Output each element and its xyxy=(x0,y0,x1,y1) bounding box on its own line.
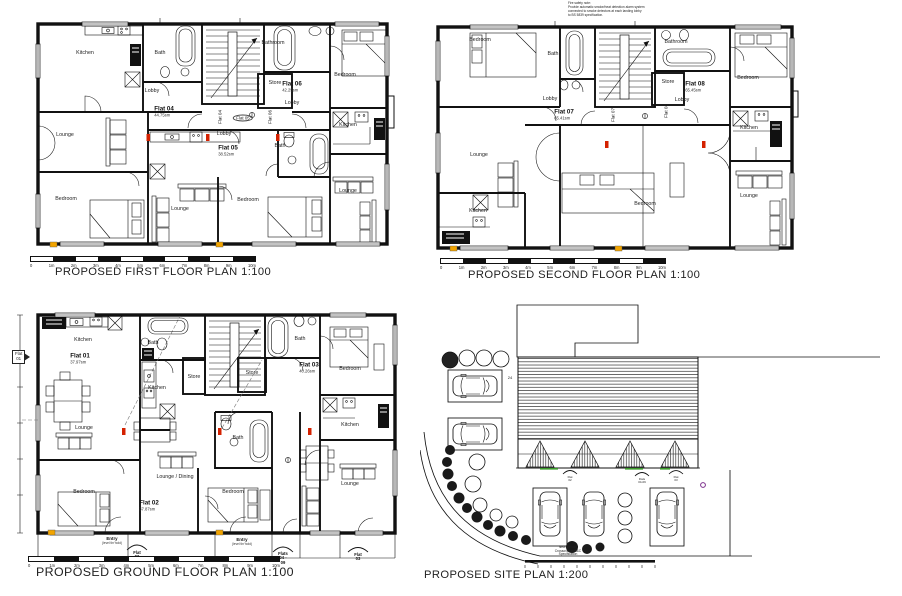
room-label: Store xyxy=(246,371,259,377)
room-label: Kitchen xyxy=(148,386,166,392)
room-label: Lounge xyxy=(470,153,488,159)
flat-area: 40.26sm xyxy=(299,369,319,373)
flat-area: 65.41sm xyxy=(554,116,574,120)
room-label: Bath xyxy=(548,52,559,58)
room-label: Bedroom xyxy=(737,76,759,82)
door-tag-flat08: Flat 08 xyxy=(664,104,669,118)
flat-label-04: Flat 0444.75sm xyxy=(154,107,174,118)
room-label: Kitchen xyxy=(74,338,92,344)
room-label: Bath xyxy=(233,436,244,442)
room-label: Lobby xyxy=(675,98,689,104)
room-label: Lobby xyxy=(543,97,557,103)
ground-floor-drawing xyxy=(10,300,410,596)
site-canopy-flats04-09: Flats 04-09 xyxy=(638,478,645,484)
room-label: Bath xyxy=(295,337,306,343)
room-label: Bath xyxy=(155,51,166,57)
flat01-entry-tag: Flat 01 xyxy=(12,350,25,364)
door-tag-flat07: Flat 07 xyxy=(611,108,616,122)
room-label: Bedroom xyxy=(222,490,244,496)
room-label: Lounge xyxy=(171,207,189,213)
site-plan-title: PROPOSED SITE PLAN 1:200 xyxy=(424,569,588,581)
entry-sub: (level thr'hold) xyxy=(232,543,252,546)
ground-floor-plan: Kitchen Bath Kitchen Store Store Bath Be… xyxy=(10,300,410,596)
entry-label: Entry(level thr'hold) xyxy=(232,538,252,546)
room-label: Lobby xyxy=(285,101,299,107)
flat-label-06: Flat 0642.25sm xyxy=(282,82,302,93)
site-canopy-flat03: Flat 03 xyxy=(674,476,679,482)
site-plan: Flat 02 Flats 04-09 Flat 03 24 New Vehic… xyxy=(420,300,900,596)
room-label: Lounge xyxy=(740,194,758,200)
room-label: Kitchen xyxy=(339,123,357,129)
room-label: Lobby xyxy=(145,89,159,95)
site-plan-drawing xyxy=(420,300,900,596)
room-label: Bedroom xyxy=(237,198,259,204)
site-note: New Vehicle Crossover to S&C Specificati… xyxy=(555,546,581,557)
room-label: Lobby xyxy=(217,132,231,138)
room-label: Store xyxy=(662,80,675,86)
site-canopy-flat02: Flat 02 xyxy=(568,476,573,482)
ground-floor-title: PROPOSED GROUND FLOOR PLAN 1:100 xyxy=(36,565,294,579)
entry-label: Entry(level thr'hold) xyxy=(102,537,122,545)
flat-area: 44.75sm xyxy=(154,113,174,117)
entry-sub: (level thr'hold) xyxy=(102,542,122,545)
room-label: Kitchen xyxy=(76,51,94,57)
flat-label-01: Flat 0137.97sm xyxy=(70,354,90,365)
room-label: Kitchen xyxy=(341,423,359,429)
second-floor-title: PROPOSED SECOND FLOOR PLAN 1:100 xyxy=(468,269,700,281)
room-label: Kitchen xyxy=(740,126,758,132)
room-label: Kitchen xyxy=(469,209,487,215)
flat-area: 38.52sm xyxy=(218,152,238,156)
room-label: Lounge xyxy=(75,426,93,432)
room-label: Lounge / Dining xyxy=(156,475,193,481)
first-floor-plan: Kitchen Bath Bathroom Bedroom Store Lobb… xyxy=(30,14,395,254)
room-label: Bedroom xyxy=(469,38,491,44)
room-label: Bath xyxy=(148,341,159,347)
flat-label-07: Flat 0765.41sm xyxy=(554,110,574,121)
room-label: Bathroom xyxy=(262,41,285,47)
flat-label-03: Flat 0340.26sm xyxy=(299,363,319,374)
room-label: Store xyxy=(269,81,282,87)
room-label: Bedroom xyxy=(55,197,77,203)
scale-bar-segments xyxy=(30,256,256,262)
canopy-label-flat03: Flat 03 xyxy=(354,553,361,562)
room-label: Bath xyxy=(275,144,286,150)
scale-bar-segments xyxy=(440,258,666,264)
flat-label-08: Flat 0865.45sm xyxy=(685,82,705,93)
room-label: Bedroom xyxy=(634,202,656,208)
flat-area: 37.87sm xyxy=(139,507,159,511)
door-tag-flat06: Flat 06 xyxy=(268,110,273,124)
door-tag-flat04: Flat 04 xyxy=(218,110,223,124)
flat-label-02: Flat 0237.87sm xyxy=(139,501,159,512)
room-label: Lounge xyxy=(339,189,357,195)
room-label: Bathroom xyxy=(665,40,688,46)
room-label: Lounge xyxy=(341,482,359,488)
room-label: Bedroom xyxy=(73,490,95,496)
flat-area: 65.45sm xyxy=(685,88,705,92)
flat-area: 37.97sm xyxy=(70,360,90,364)
scale-bar-segments xyxy=(28,556,280,562)
flat-area: 42.25sm xyxy=(282,88,302,92)
room-label: Bedroom xyxy=(339,367,361,373)
room-label: Store xyxy=(188,375,201,381)
site-number: 24 xyxy=(508,376,512,380)
second-floor-drawing xyxy=(430,13,800,258)
drawing-sheet: Kitchen Bath Bathroom Bedroom Store Lobb… xyxy=(0,0,902,596)
first-floor-title: PROPOSED FIRST FLOOR PLAN 1:100 xyxy=(55,266,271,278)
room-label: Bedroom xyxy=(334,73,356,79)
flat-label-05: Flat 0538.52sm xyxy=(218,146,238,157)
second-floor-plan: Bedroom Bath Bathroom Bedroom Store Lobb… xyxy=(430,13,800,258)
room-label: Lounge xyxy=(56,133,74,139)
